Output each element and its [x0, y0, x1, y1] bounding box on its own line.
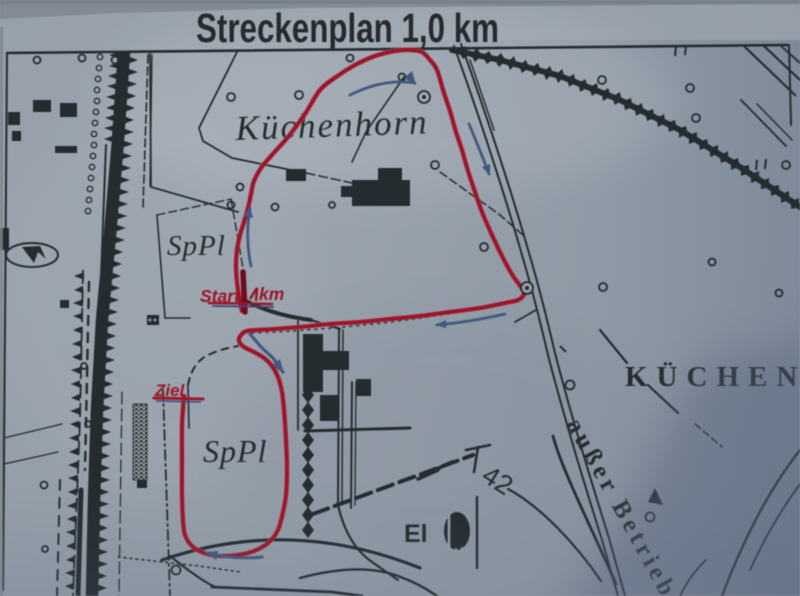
svg-text:SpPl: SpPl — [203, 433, 267, 469]
svg-text:Start: Start — [200, 286, 241, 306]
svg-text:Küchenhorn: Küchenhorn — [234, 102, 429, 148]
svg-text:Ziel: Ziel — [154, 381, 186, 400]
svg-text:SpPl: SpPl — [167, 230, 226, 262]
svg-text:Streckenplan 1,0 km: Streckenplan 1,0 km — [196, 5, 499, 51]
svg-text:km: km — [259, 284, 284, 304]
